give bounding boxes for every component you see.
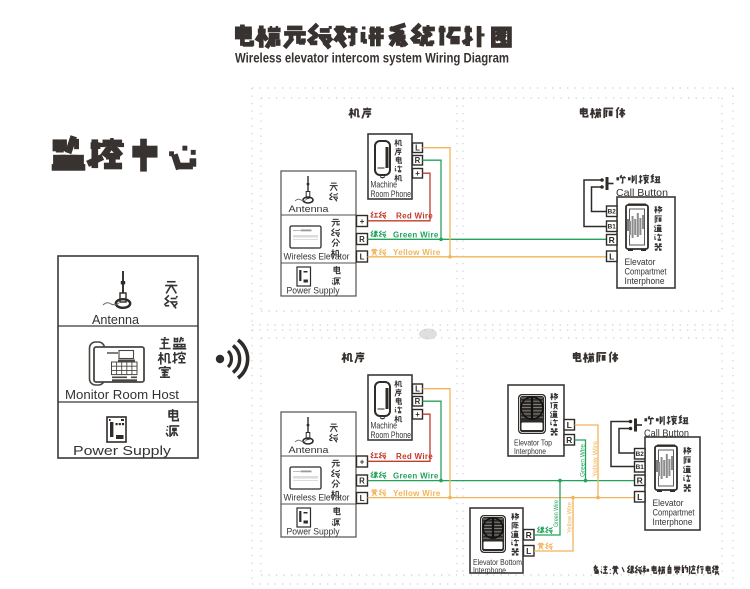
svg-text:Interphone: Interphone <box>653 517 693 527</box>
svg-text:+: + <box>415 410 420 419</box>
svg-text::: : <box>609 565 612 576</box>
svg-text:+: + <box>415 169 420 178</box>
svg-text:Room Phone: Room Phone <box>371 189 412 199</box>
svg-text:Power Supply: Power Supply <box>73 443 171 458</box>
svg-text:Green Wire: Green Wire <box>393 231 439 240</box>
svg-text:Compartmet: Compartmet <box>625 267 667 277</box>
svg-text:Machine: Machine <box>371 180 398 190</box>
svg-text:Yellow Wire: Yellow Wire <box>393 248 441 257</box>
svg-text:Red Wire: Red Wire <box>396 452 433 461</box>
svg-text:Green Wire: Green Wire <box>580 444 587 477</box>
svg-text:B2: B2 <box>608 209 617 216</box>
svg-text:Antenna: Antenna <box>289 445 329 455</box>
svg-text:Yellow Wire: Yellow Wire <box>393 489 441 498</box>
svg-text:R: R <box>359 235 365 244</box>
svg-text:Interphone: Interphone <box>625 276 665 286</box>
svg-text:Monitor Room Host: Monitor Room Host <box>65 387 179 402</box>
svg-text:L: L <box>360 252 365 261</box>
svg-text:Wireless elevator intercom sys: Wireless elevator intercom system Wiring… <box>235 50 509 66</box>
svg-text:L: L <box>637 492 642 502</box>
svg-text:Room Phone: Room Phone <box>371 430 412 440</box>
svg-text:Antenna: Antenna <box>92 312 140 327</box>
svg-text:R: R <box>415 156 421 165</box>
svg-text:B1: B1 <box>636 464 645 471</box>
svg-text:L: L <box>415 144 420 153</box>
svg-text:L: L <box>609 251 614 261</box>
svg-text:Compartmet: Compartmet <box>653 508 695 518</box>
svg-text:R: R <box>566 435 572 445</box>
svg-text:+: + <box>360 457 365 466</box>
svg-text:B1: B1 <box>608 224 617 231</box>
svg-text:Green Wire: Green Wire <box>393 472 439 481</box>
svg-text:R: R <box>359 476 365 485</box>
svg-text:R: R <box>637 475 643 485</box>
svg-text:Elevator: Elevator <box>653 498 684 508</box>
svg-text:R: R <box>415 397 421 406</box>
svg-text:R: R <box>526 530 532 540</box>
svg-text:+: + <box>360 217 365 226</box>
svg-text:Elevator: Elevator <box>625 257 656 267</box>
svg-text:L: L <box>415 385 420 394</box>
svg-text:B2: B2 <box>636 451 645 458</box>
svg-text:Yellow Wire: Yellow Wire <box>567 502 574 533</box>
svg-text:L: L <box>526 546 531 556</box>
svg-text:L: L <box>567 420 572 430</box>
svg-text:Power Supply: Power Supply <box>287 286 340 296</box>
svg-text:Red Wire: Red Wire <box>396 212 433 221</box>
svg-text:Antenna: Antenna <box>289 204 329 214</box>
svg-text:R: R <box>609 235 615 245</box>
svg-text:Power Supply: Power Supply <box>287 527 340 537</box>
svg-text:Interphone: Interphone <box>514 446 546 456</box>
svg-text:Machine: Machine <box>371 421 398 431</box>
svg-text:Green Wire: Green Wire <box>553 500 560 527</box>
svg-text:Yellow Wire: Yellow Wire <box>592 441 599 477</box>
svg-text:L: L <box>360 494 365 503</box>
svg-text:Interphone: Interphone <box>473 565 506 575</box>
